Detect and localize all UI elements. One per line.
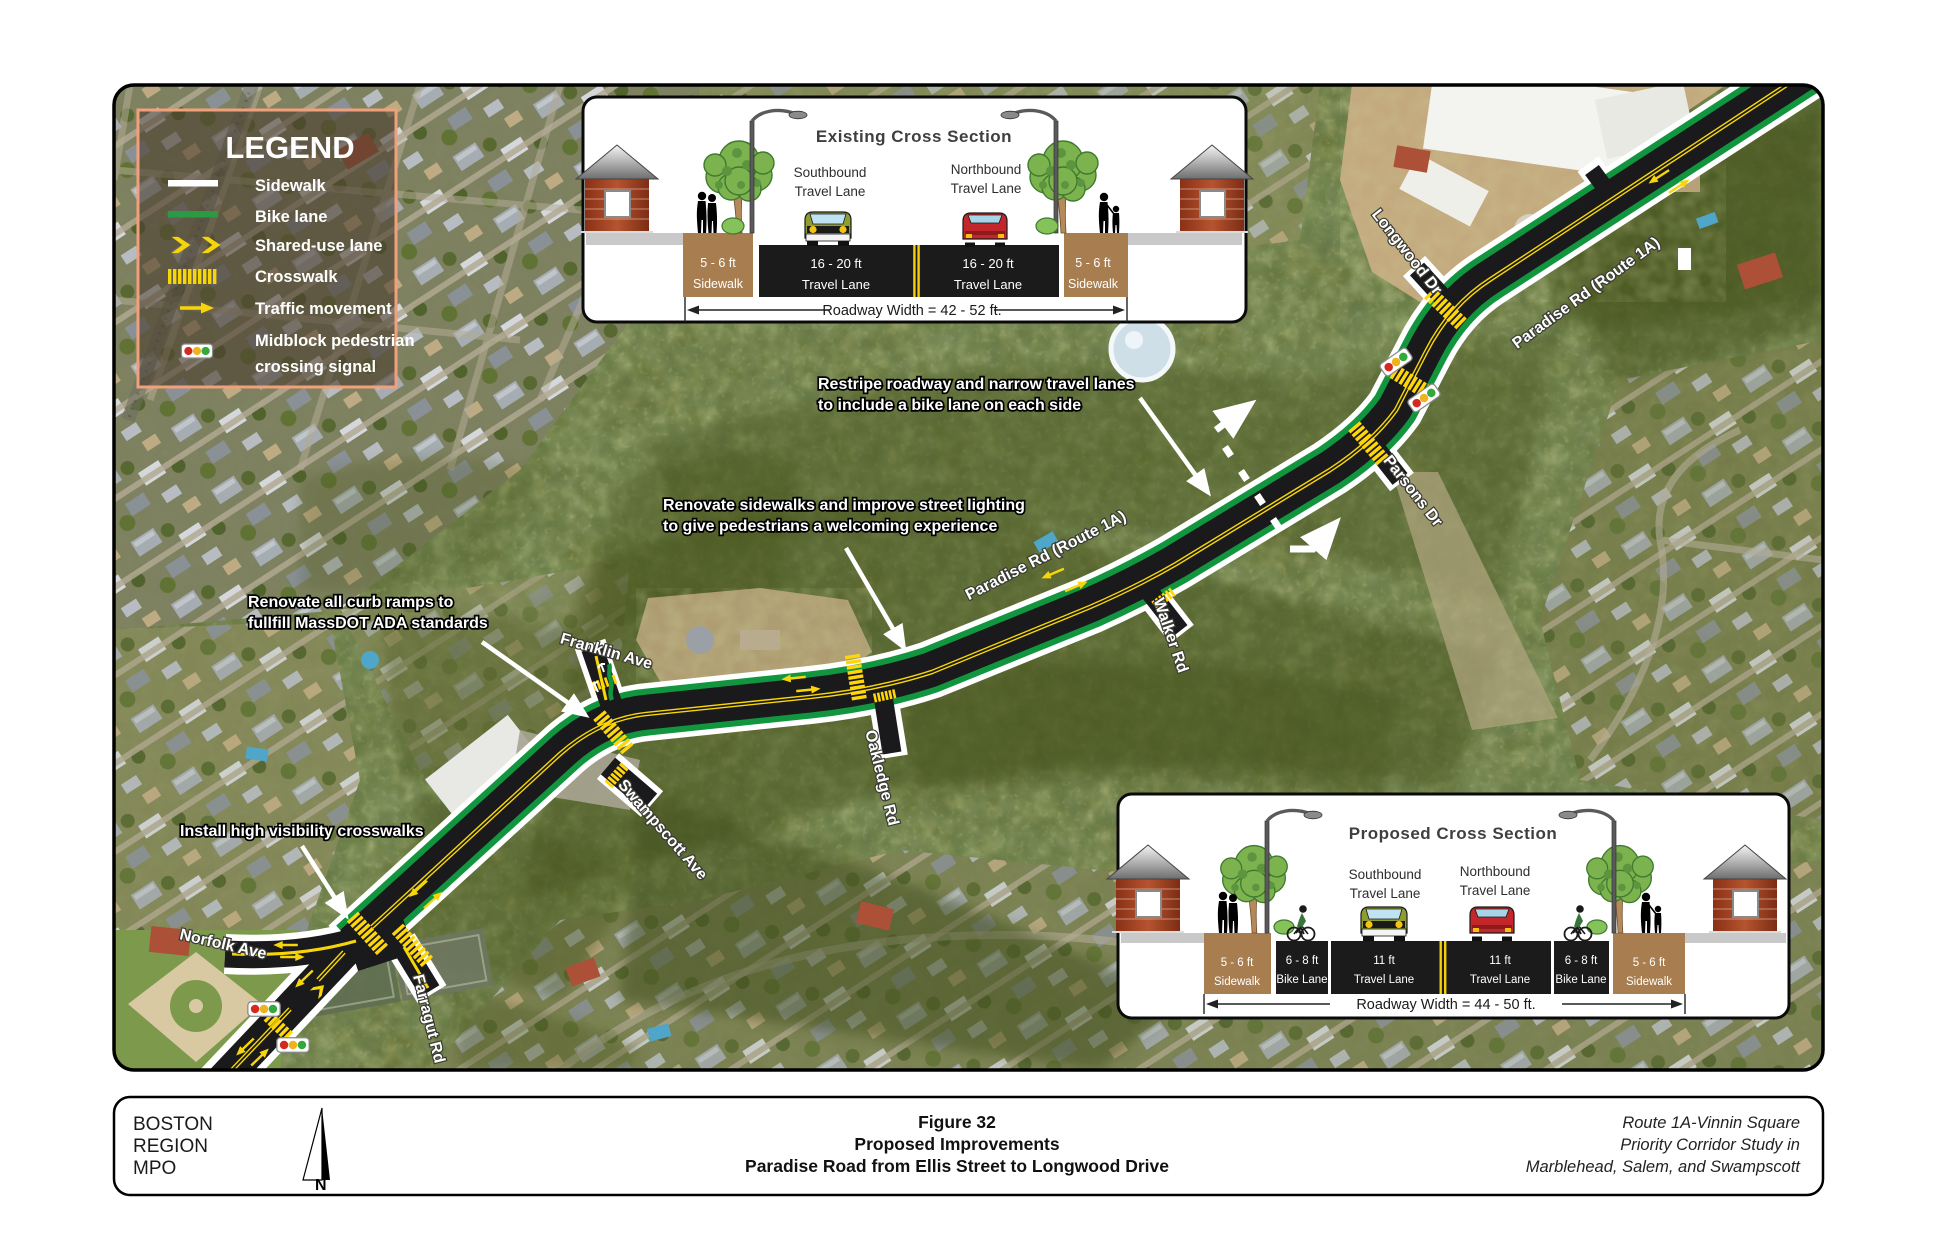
svg-text:Travel Lane: Travel Lane bbox=[1470, 974, 1530, 986]
svg-text:Travel Lane: Travel Lane bbox=[951, 181, 1022, 196]
svg-text:16 - 20 ft: 16 - 20 ft bbox=[810, 256, 862, 271]
svg-text:Northbound: Northbound bbox=[951, 162, 1022, 177]
svg-text:Sidewalk: Sidewalk bbox=[1068, 277, 1119, 291]
svg-text:to give pedestrians a welcomin: to give pedestrians a welcoming experien… bbox=[663, 518, 997, 535]
svg-text:6 - 8 ft: 6 - 8 ft bbox=[1286, 955, 1319, 967]
svg-text:fullfill MassDOT ADA standards: fullfill MassDOT ADA standards bbox=[248, 615, 488, 632]
svg-text:6 - 8 ft: 6 - 8 ft bbox=[1565, 955, 1598, 967]
svg-text:REGION: REGION bbox=[133, 1136, 208, 1157]
svg-text:Sidewalk: Sidewalk bbox=[693, 277, 744, 291]
svg-text:Sidewalk: Sidewalk bbox=[255, 177, 326, 195]
svg-text:Bike Lane: Bike Lane bbox=[1555, 974, 1606, 986]
svg-text:Southbound: Southbound bbox=[794, 165, 867, 180]
svg-text:5 - 6 ft: 5 - 6 ft bbox=[1075, 256, 1111, 270]
svg-text:Paradise Road from Ellis Stree: Paradise Road from Ellis Street to Longw… bbox=[745, 1156, 1169, 1176]
svg-text:Shared-use lane: Shared-use lane bbox=[255, 237, 382, 255]
svg-text:Travel Lane: Travel Lane bbox=[795, 184, 866, 199]
svg-text:Renovate sidewalks and improve: Renovate sidewalks and improve street li… bbox=[663, 497, 1025, 514]
svg-text:Priority Corridor Study in: Priority Corridor Study in bbox=[1620, 1136, 1800, 1154]
svg-text:Travel Lane: Travel Lane bbox=[1350, 886, 1421, 901]
svg-text:Figure 32: Figure 32 bbox=[918, 1112, 996, 1132]
svg-text:Southbound: Southbound bbox=[1349, 867, 1422, 882]
svg-text:Northbound: Northbound bbox=[1460, 864, 1531, 879]
svg-text:Install high visibility crossw: Install high visibility crosswalks bbox=[180, 823, 424, 840]
svg-text:11 ft: 11 ft bbox=[1489, 955, 1511, 967]
svg-text:BOSTON: BOSTON bbox=[133, 1114, 213, 1135]
svg-text:Marblehead, Salem, and Swampsc: Marblehead, Salem, and Swampscott bbox=[1526, 1158, 1802, 1176]
svg-text:Existing Cross Section: Existing Cross Section bbox=[816, 127, 1012, 146]
svg-text:Crosswalk: Crosswalk bbox=[255, 268, 338, 286]
svg-text:Proposed Improvements: Proposed Improvements bbox=[854, 1134, 1059, 1154]
svg-text:LEGEND: LEGEND bbox=[225, 130, 354, 165]
svg-text:Route 1A-Vinnin Square: Route 1A-Vinnin Square bbox=[1622, 1114, 1800, 1132]
svg-text:Bike Lane: Bike Lane bbox=[1276, 974, 1327, 986]
svg-text:11 ft: 11 ft bbox=[1373, 955, 1395, 967]
svg-text:Sidewalk: Sidewalk bbox=[1214, 976, 1260, 988]
svg-text:MPO: MPO bbox=[133, 1158, 176, 1179]
svg-text:Travel Lane: Travel Lane bbox=[802, 277, 870, 292]
svg-text:5 - 6 ft: 5 - 6 ft bbox=[1633, 957, 1666, 969]
svg-text:Restripe roadway and narrow tr: Restripe roadway and narrow travel lanes bbox=[818, 376, 1135, 393]
svg-text:Traffic movement: Traffic movement bbox=[255, 300, 392, 318]
svg-text:Roadway Width = 42 - 52 ft.: Roadway Width = 42 - 52 ft. bbox=[822, 303, 1001, 319]
svg-text:Midblock pedestrian: Midblock pedestrian bbox=[255, 332, 415, 350]
svg-text:5 - 6 ft: 5 - 6 ft bbox=[1221, 957, 1254, 969]
svg-text:Sidewalk: Sidewalk bbox=[1626, 976, 1672, 988]
svg-text:Travel Lane: Travel Lane bbox=[1354, 974, 1414, 986]
svg-text:Proposed Cross Section: Proposed Cross Section bbox=[1349, 824, 1557, 843]
svg-text:Travel Lane: Travel Lane bbox=[1460, 883, 1531, 898]
svg-text:16 - 20 ft: 16 - 20 ft bbox=[962, 256, 1014, 271]
svg-text:to include a bike lane on each: to include a bike lane on each side bbox=[818, 397, 1081, 414]
svg-text:Roadway Width = 44 - 50 ft.: Roadway Width = 44 - 50 ft. bbox=[1356, 997, 1535, 1013]
svg-text:5 - 6 ft: 5 - 6 ft bbox=[700, 256, 736, 270]
svg-text:Renovate all curb ramps to: Renovate all curb ramps to bbox=[248, 594, 454, 611]
svg-text:Travel Lane: Travel Lane bbox=[954, 277, 1022, 292]
svg-text:crossing signal: crossing signal bbox=[255, 358, 376, 376]
svg-text:Bike lane: Bike lane bbox=[255, 208, 327, 226]
svg-text:N: N bbox=[315, 1177, 327, 1194]
